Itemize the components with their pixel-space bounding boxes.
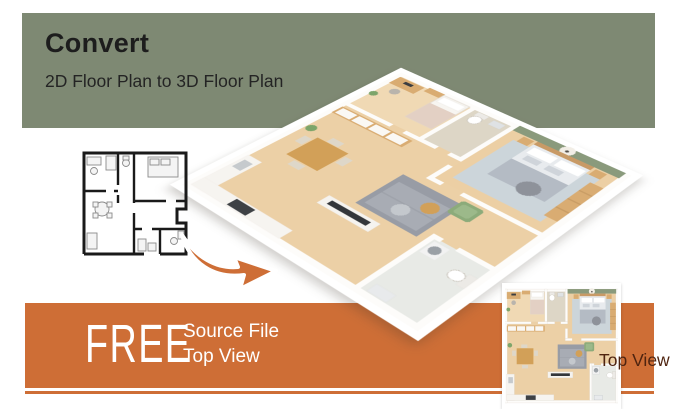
header-panel: Convert 2D Floor Plan to 3D Floor Plan [22, 13, 655, 128]
page-title: Convert [45, 28, 149, 59]
arrow-icon [176, 227, 284, 291]
offer-lines: Source File Top View [183, 319, 279, 369]
promo-poster: Convert 2D Floor Plan to 3D Floor Plan [0, 0, 680, 409]
offer-line-source-file: Source File [183, 319, 279, 344]
page-subtitle: 2D Floor Plan to 3D Floor Plan [45, 71, 283, 92]
floorplan-topview-render [505, 286, 618, 406]
floorplan-topview-image [502, 283, 621, 409]
free-label: FREE [85, 311, 191, 377]
topview-caption: Top View [599, 350, 670, 371]
offer-line-top-view: Top View [183, 344, 279, 369]
floorplan-2d-image [82, 151, 189, 257]
